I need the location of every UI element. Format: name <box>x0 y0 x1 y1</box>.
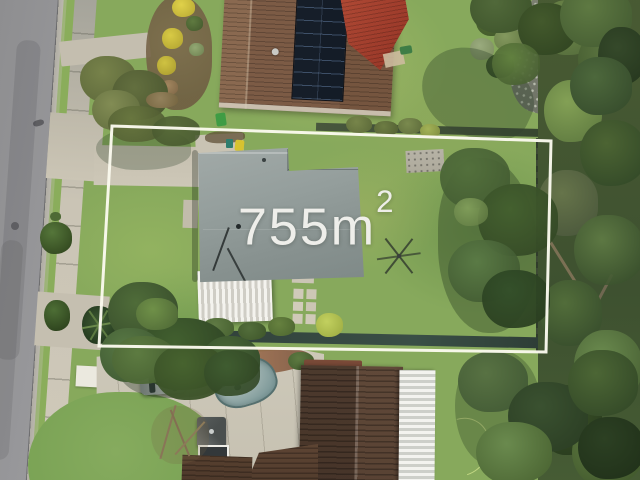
area-value: 755m <box>238 198 376 256</box>
area-superscript: 2 <box>376 184 393 219</box>
aerial-photo-scene: 755m2 <box>0 0 640 480</box>
area-label: 755m2 <box>238 200 393 253</box>
